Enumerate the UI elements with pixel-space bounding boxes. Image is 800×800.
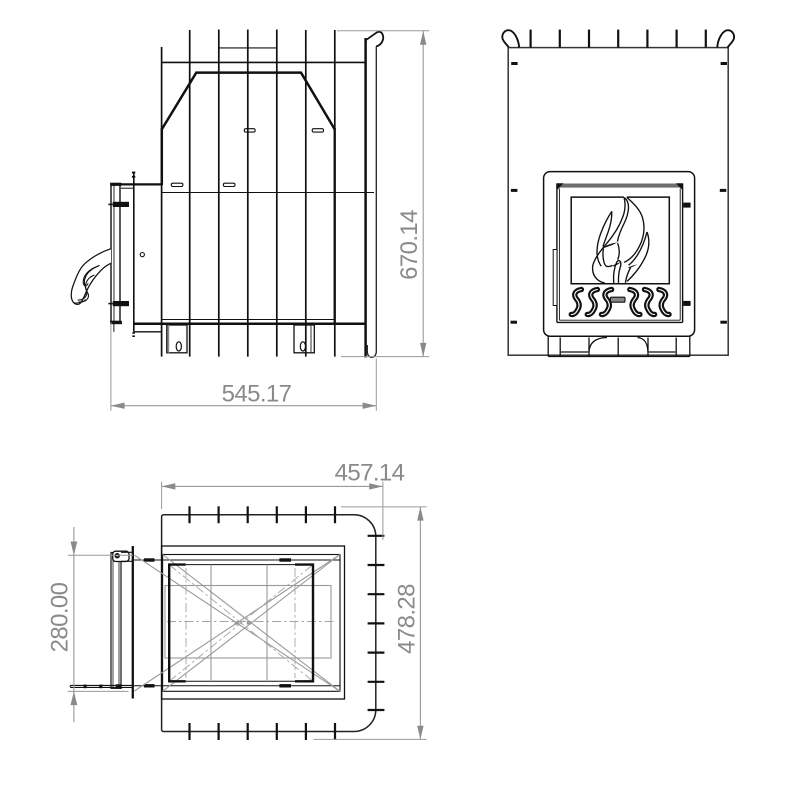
svg-text:545.17: 545.17	[222, 380, 292, 407]
svg-text:457.14: 457.14	[335, 459, 405, 486]
svg-text:670.14: 670.14	[396, 210, 423, 280]
svg-text:478.28: 478.28	[394, 584, 421, 654]
svg-text:280.00: 280.00	[47, 582, 74, 652]
